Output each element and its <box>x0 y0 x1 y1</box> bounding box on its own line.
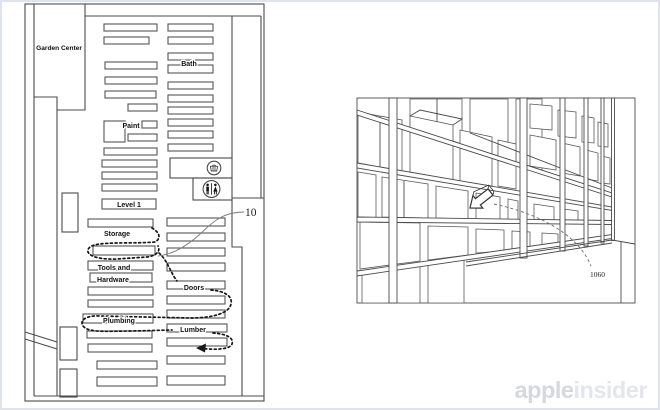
label-storage: Storage <box>104 231 130 238</box>
label-lumber: Lumber <box>180 327 206 334</box>
label-garden-center: Garden Center <box>36 45 82 52</box>
label-tools-and: Tools and <box>98 265 131 272</box>
label-level-1: Level 1 <box>117 202 141 209</box>
floor-plan-figure: 10 Garden Center Bath Paint Level 1 Stor… <box>25 4 264 401</box>
appleinsider-watermark: appleinsider <box>515 377 647 404</box>
patent-figures: 10 Garden Center Bath Paint Level 1 Stor… <box>0 0 660 410</box>
shelf-view-figure: 1060 <box>357 98 635 303</box>
ref-number-10: 10 <box>245 207 257 219</box>
basket-icon <box>207 161 221 175</box>
ref-number-1060: 1060 <box>590 270 605 279</box>
label-hardware: Hardware <box>97 277 129 284</box>
watermark-insider: insider <box>573 377 647 403</box>
restroom-icon <box>203 181 220 198</box>
label-plumbing: Plumbing <box>103 318 135 325</box>
label-bath: Bath <box>181 61 197 68</box>
watermark-apple: apple <box>515 377 574 403</box>
label-doors: Doors <box>184 285 204 292</box>
label-paint: Paint <box>122 123 140 130</box>
